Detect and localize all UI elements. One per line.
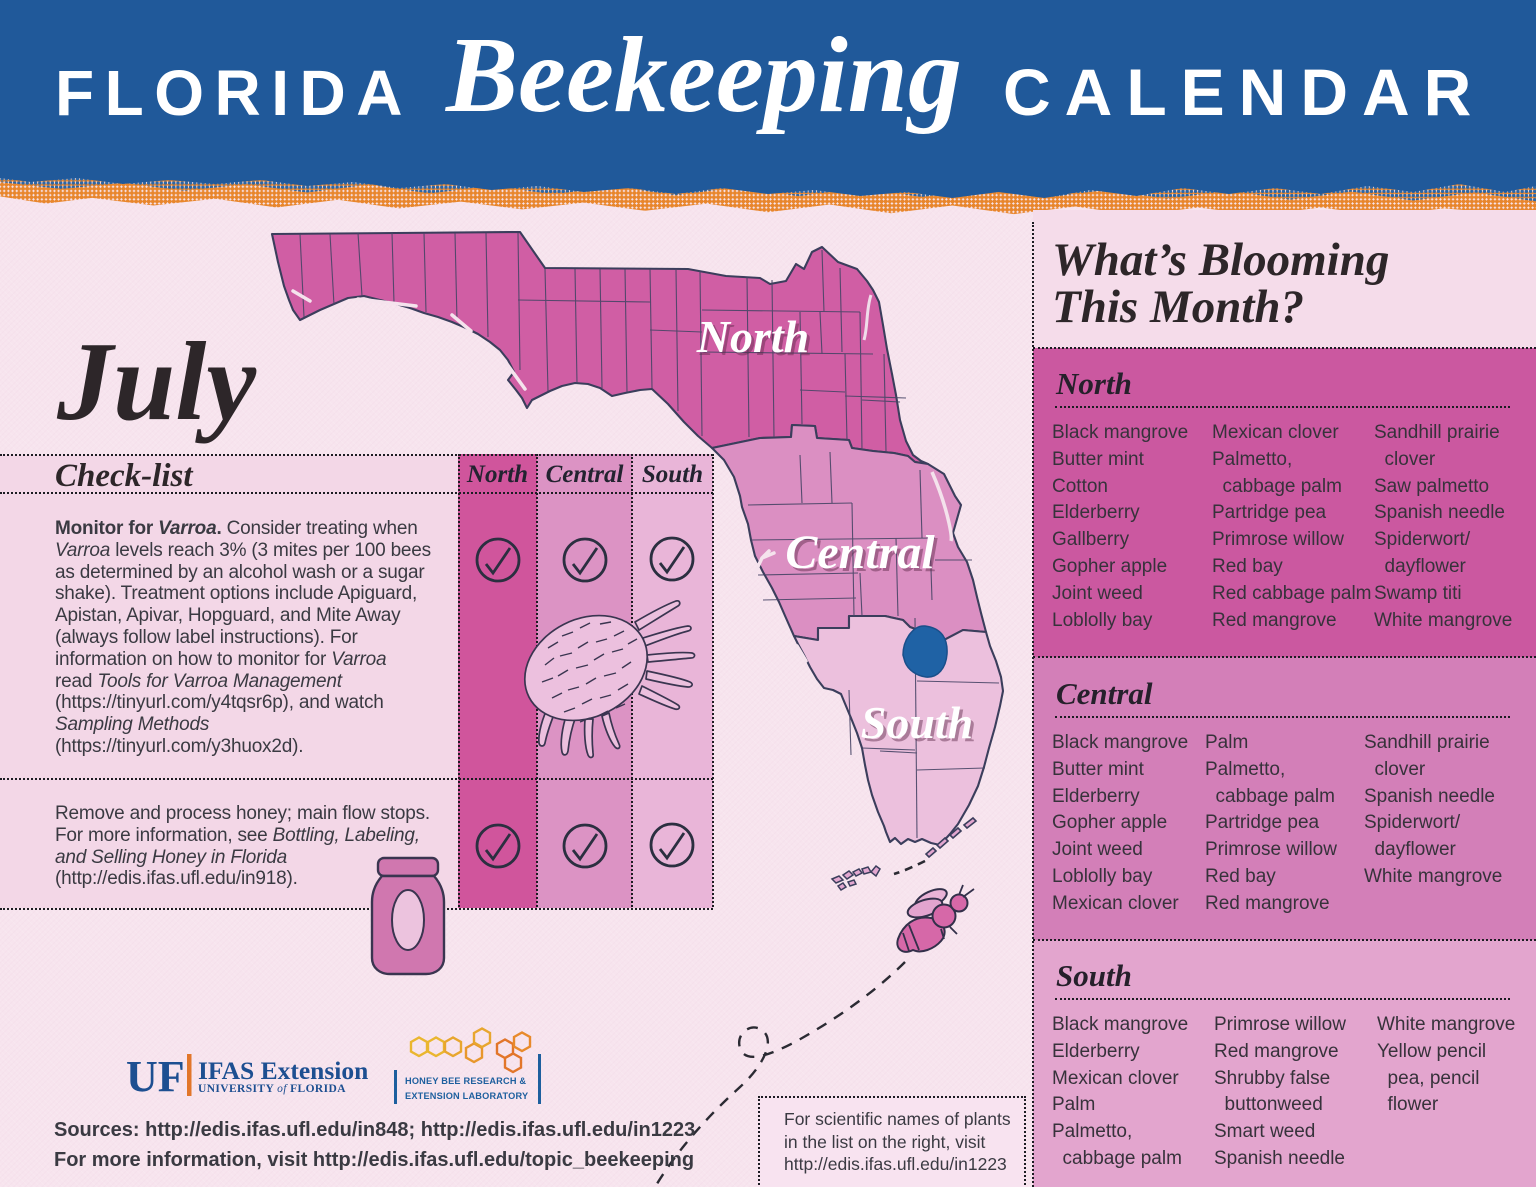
svg-text:North: North (696, 311, 809, 362)
svg-text:HONEY BEE RESEARCH &: HONEY BEE RESEARCH & (405, 1076, 526, 1086)
svg-text:IFAS Extension: IFAS Extension (198, 1056, 368, 1085)
svg-text:UF: UF (126, 1052, 185, 1101)
svg-text:EXTENSION LABORATORY: EXTENSION LABORATORY (405, 1091, 528, 1101)
svg-text:South: South (861, 697, 974, 748)
svg-text:UNIVERSITY of FLORIDA: UNIVERSITY of FLORIDA (198, 1083, 346, 1095)
svg-text:Central: Central (785, 526, 935, 579)
